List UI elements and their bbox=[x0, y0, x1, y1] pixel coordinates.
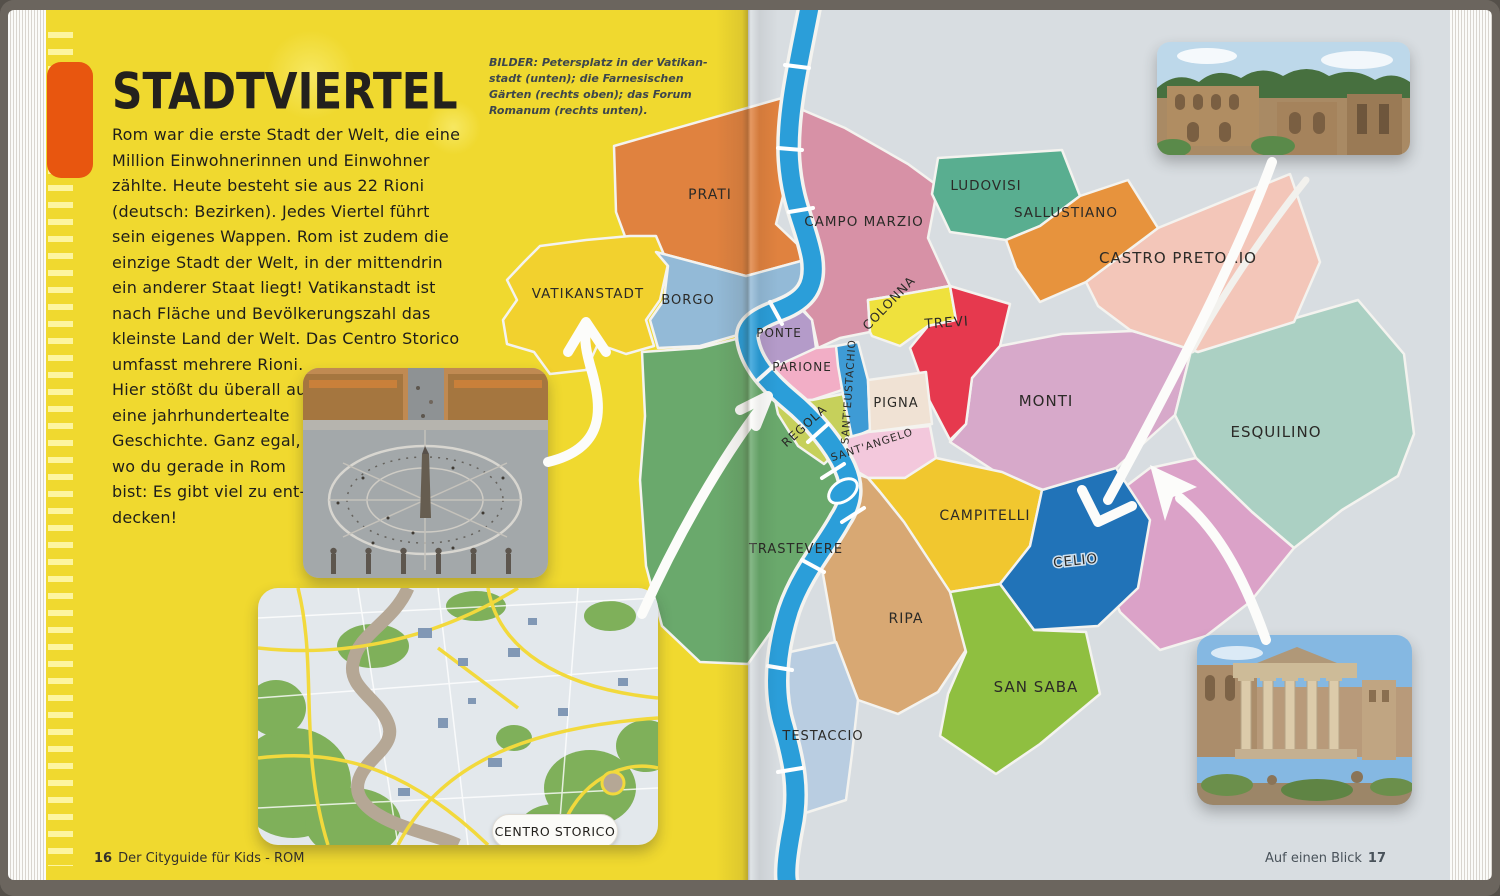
arrow-overlay bbox=[0, 0, 1500, 896]
arrow-to-celio bbox=[1082, 162, 1272, 522]
cover-edge-bottom bbox=[0, 880, 1500, 896]
arrow-to-parione bbox=[642, 396, 768, 614]
arrow-from-forum bbox=[1150, 465, 1266, 640]
arrow-to-vatikanstadt bbox=[548, 322, 606, 462]
cover-edge-top bbox=[0, 0, 1500, 10]
book-spread: STADTVIERTEL Rom war die erste Stadt der… bbox=[0, 0, 1500, 896]
